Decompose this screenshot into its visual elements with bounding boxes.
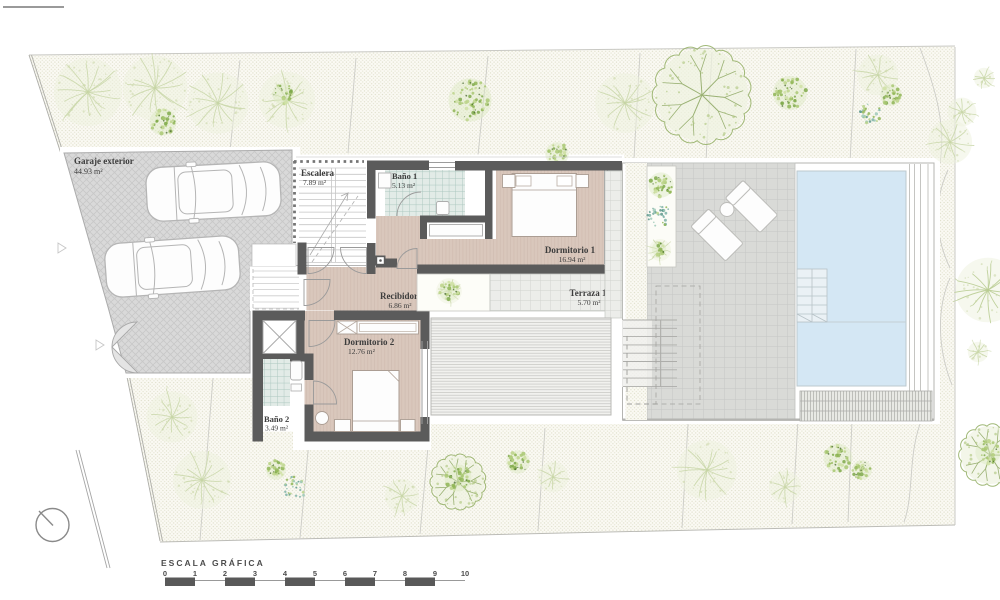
svg-text:Recibidor: Recibidor — [380, 291, 418, 301]
svg-text:5.70 m²: 5.70 m² — [577, 298, 601, 307]
svg-text:16.94 m²: 16.94 m² — [559, 255, 587, 264]
svg-text:Baño 1: Baño 1 — [392, 171, 417, 181]
svg-text:1: 1 — [193, 569, 197, 578]
svg-text:44.93 m²: 44.93 m² — [74, 167, 103, 176]
svg-text:Escalera: Escalera — [301, 168, 334, 178]
svg-text:2: 2 — [223, 569, 227, 578]
svg-text:7: 7 — [373, 569, 377, 578]
svg-text:8: 8 — [403, 569, 407, 578]
svg-text:Dormitorio 2: Dormitorio 2 — [344, 337, 395, 347]
svg-text:5: 5 — [313, 569, 317, 578]
svg-text:Garaje exterior: Garaje exterior — [74, 156, 134, 166]
svg-text:9: 9 — [433, 569, 437, 578]
svg-text:ESCALA GRÁFICA: ESCALA GRÁFICA — [161, 558, 265, 568]
svg-text:Dormitorio 1: Dormitorio 1 — [545, 245, 596, 255]
svg-text:6: 6 — [343, 569, 347, 578]
svg-text:0: 0 — [163, 569, 167, 578]
svg-text:Terraza 1: Terraza 1 — [570, 288, 607, 298]
svg-text:Baño 2: Baño 2 — [264, 414, 289, 424]
svg-text:12.76 m²: 12.76 m² — [348, 347, 376, 356]
svg-text:5.13 m²: 5.13 m² — [392, 181, 416, 190]
svg-text:7.89 m²: 7.89 m² — [303, 178, 327, 187]
svg-text:3: 3 — [253, 569, 257, 578]
svg-text:10: 10 — [461, 569, 469, 578]
svg-text:6.86 m²: 6.86 m² — [388, 301, 412, 310]
svg-text:3.49 m²: 3.49 m² — [265, 424, 289, 433]
